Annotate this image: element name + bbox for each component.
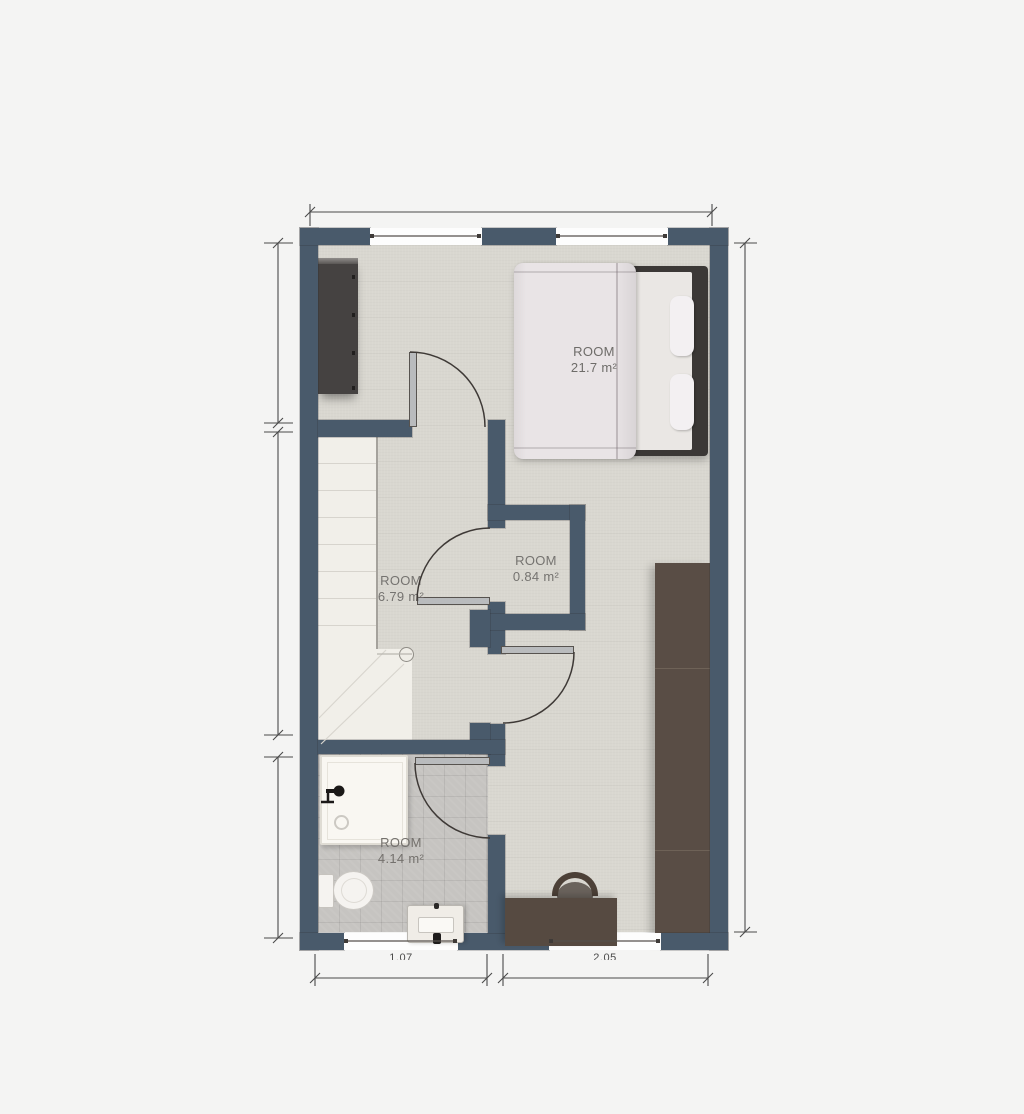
tall-wardrobe-shelf-line — [655, 850, 710, 851]
wall-top-pier — [668, 228, 728, 245]
duvet-fold — [514, 447, 636, 449]
room-area: 6.79 m² — [378, 589, 424, 605]
shower-tray — [320, 755, 408, 845]
floor-plan: ROOM 21.7 m² ROOM 6.79 m² ROOM 0.84 m² R… — [0, 0, 1024, 1114]
door-leaf-hall — [501, 646, 574, 654]
room-name: ROOM — [571, 344, 617, 360]
wall-right — [710, 228, 728, 950]
wall-bottom-pier — [300, 933, 344, 950]
stairs-landing — [318, 649, 412, 740]
room-name: ROOM — [378, 835, 424, 851]
door-leaf-closet — [417, 597, 490, 605]
sink-faucet — [433, 933, 441, 944]
dimension-label-bottom-left: 1.07 — [346, 953, 456, 960]
wardrobe-handle — [352, 275, 355, 279]
bed-pillow — [670, 296, 694, 356]
dimension-value: 1.07 — [346, 953, 456, 960]
room-label-hall: ROOM 6.79 m² — [378, 573, 424, 605]
wardrobe-handle — [352, 386, 355, 390]
room-area: 21.7 m² — [571, 360, 617, 376]
toilet-bowl — [333, 871, 374, 910]
sink-vanity — [407, 905, 464, 943]
door-leaf-bathroom — [415, 757, 490, 765]
door-leaf-bedroom — [409, 352, 417, 427]
room-label-bedroom: ROOM 21.7 m² — [571, 344, 617, 376]
stairs-newel — [399, 647, 414, 662]
wardrobe-handle — [352, 313, 355, 317]
room-area: 0.84 m² — [513, 569, 559, 585]
wall-top-pier — [482, 228, 556, 245]
dimension-value: 2.05 — [551, 953, 659, 960]
wall-bathroom-top — [318, 740, 505, 754]
wall-interior-vertical — [488, 835, 505, 933]
wall-left — [300, 228, 318, 950]
tall-wardrobe-shelf-line — [655, 668, 710, 669]
wall-top-pier — [300, 228, 370, 245]
window — [556, 228, 668, 245]
shower-drain — [334, 815, 349, 830]
wardrobe-top-edge — [318, 258, 358, 264]
wall-closet-bottom — [488, 614, 585, 630]
wall-closet-right — [570, 505, 585, 630]
wardrobe-handle — [352, 351, 355, 355]
tall-wardrobe — [655, 563, 710, 940]
toilet-tank — [318, 874, 334, 908]
room-area: 4.14 m² — [378, 851, 424, 867]
sink-knob — [434, 903, 439, 909]
desk — [505, 898, 617, 946]
room-name: ROOM — [513, 553, 559, 569]
stairs-railing — [376, 437, 378, 653]
room-label-bathroom: ROOM 4.14 m² — [378, 835, 424, 867]
sink-basin — [418, 917, 454, 933]
room-name: ROOM — [378, 573, 424, 589]
duvet-fold — [514, 271, 636, 273]
wardrobe — [318, 258, 358, 394]
wall-bedroom — [318, 420, 412, 437]
wall-jog — [470, 610, 490, 647]
window — [370, 228, 482, 245]
bed-pillow — [670, 374, 694, 430]
toilet-bowl-inner — [341, 878, 367, 903]
wall-bottom-pier — [661, 933, 728, 950]
stairs-flight — [318, 437, 376, 649]
dimension-label-bottom-right: 2.05 — [551, 953, 659, 960]
room-label-closet: ROOM 0.84 m² — [513, 553, 559, 585]
